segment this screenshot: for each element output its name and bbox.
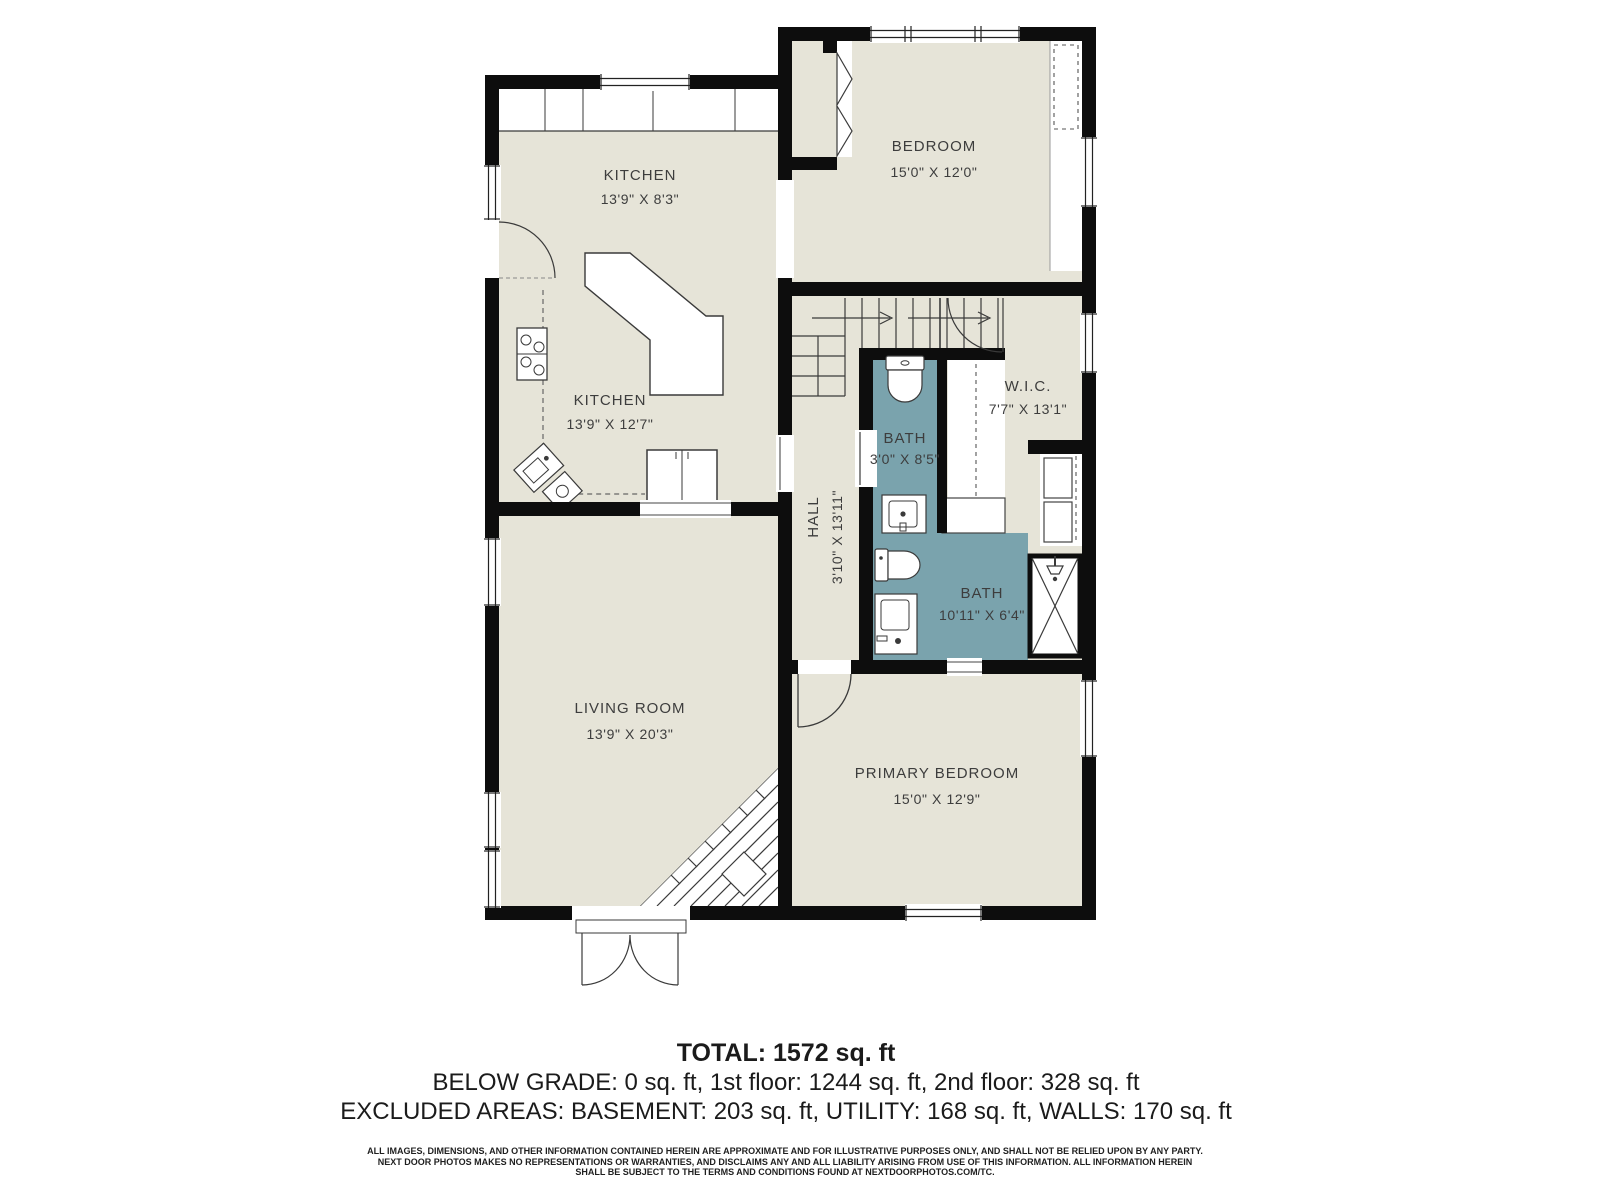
kitchen-window [483, 165, 501, 220]
excluded-areas-text: EXCLUDED AREAS: BASEMENT: 203 sq. ft, UT… [0, 1097, 1572, 1126]
kitchen-hall-opening [776, 435, 794, 492]
kitchen-main-dims: 13'9" X 12'7" [567, 416, 654, 432]
living-room-cased-opening [640, 500, 731, 518]
kitchen-top-dims: 13'9" X 8'3" [601, 191, 680, 207]
linen-closet-strip [942, 360, 1005, 533]
living-room-window-3 [483, 850, 501, 908]
living-room-window-2 [483, 792, 501, 848]
bathroom-sink [882, 495, 926, 533]
kitchen-counters-top [499, 89, 778, 131]
kitchen-main-label: KITCHEN [574, 392, 647, 409]
bathroom-sink [875, 594, 917, 654]
wic-window [1080, 313, 1098, 373]
living-room-window-1 [483, 538, 501, 606]
stove [517, 328, 547, 380]
hall-label: HALL [805, 496, 822, 538]
bedroom-closet-bifold [837, 41, 852, 157]
disclaimer-line-3: SHALL BE SUBJECT TO THE TERMS AND CONDIT… [0, 1167, 1570, 1178]
primary-bedroom-bottom-window [905, 904, 982, 922]
wic-label: W.I.C. [1005, 378, 1052, 395]
floor-plan-drawing: KITCHEN 13'9" X 8'3" BEDROOM 15'0" X 12'… [0, 0, 1600, 1200]
bedroom-closet-strip [1050, 41, 1082, 271]
bath-small-dims: 3'0" X 8'5" [870, 451, 940, 467]
toilet [886, 356, 924, 402]
hall-dims: 3'10" X 13'11" [829, 490, 845, 584]
disclaimer: ALL IMAGES, DIMENSIONS, AND OTHER INFORM… [0, 1146, 1570, 1178]
floor-areas-text: BELOW GRADE: 0 sq. ft, 1st floor: 1244 s… [0, 1068, 1572, 1097]
bath-main-dims: 10'11" X 6'4" [939, 607, 1025, 623]
bedroom-label: BEDROOM [892, 138, 977, 155]
disclaimer-line-2: NEXT DOOR PHOTOS MAKES NO REPRESENTATION… [0, 1157, 1570, 1168]
total-area-text: TOTAL: 1572 sq. ft [0, 1039, 1572, 1068]
bath-main-cased-opening [947, 658, 982, 676]
toilet [875, 549, 920, 581]
disclaimer-line-1: ALL IMAGES, DIMENSIONS, AND OTHER INFORM… [0, 1146, 1570, 1157]
primary-bedroom-window [1080, 680, 1098, 757]
kitchen-top-window [600, 73, 690, 91]
laundry-box [942, 498, 1005, 533]
bath-main-label: BATH [961, 585, 1004, 602]
floor-plan-page: KITCHEN 13'9" X 8'3" BEDROOM 15'0" X 12'… [0, 0, 1600, 1200]
bedroom-right-window [1080, 137, 1098, 207]
bedroom-dims: 15'0" X 12'0" [891, 164, 978, 180]
bath-small-label: BATH [884, 430, 927, 447]
kitchen-top-label: KITCHEN [604, 167, 677, 184]
primary-bedroom-label: PRIMARY BEDROOM [855, 765, 1019, 782]
bedroom-top-window [870, 25, 1020, 43]
primary-bedroom-dims: 15'0" X 12'9" [894, 791, 981, 807]
shower [1030, 556, 1080, 656]
wic-dims: 7'7" X 13'1" [989, 401, 1068, 417]
living-room-dims: 13'9" X 20'3" [587, 726, 674, 742]
wic-cabinets [1040, 454, 1082, 546]
area-summary: TOTAL: 1572 sq. ft BELOW GRADE: 0 sq. ft… [0, 1039, 1572, 1126]
living-room-label: LIVING ROOM [574, 700, 685, 717]
entry-double-door [572, 906, 690, 985]
